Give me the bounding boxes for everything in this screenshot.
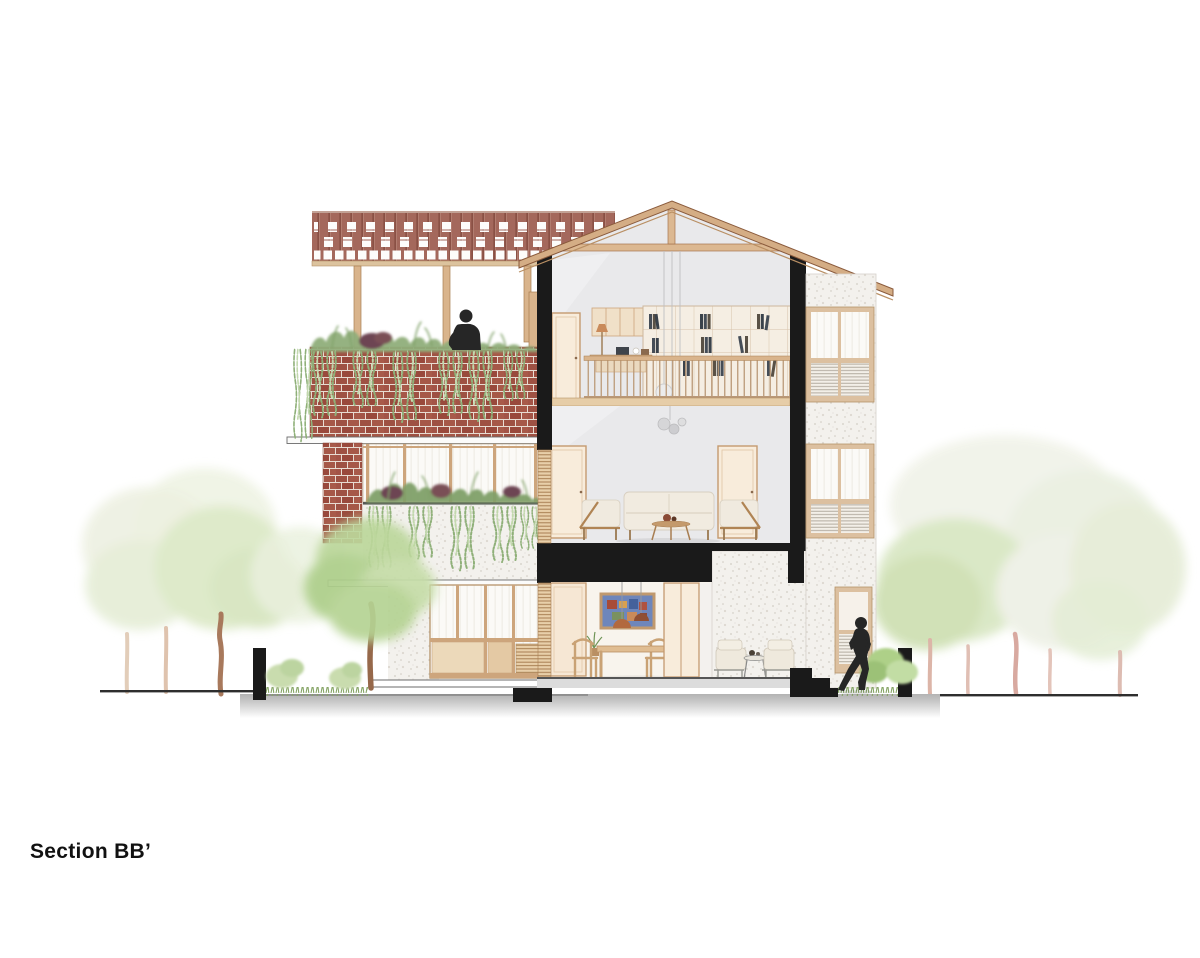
right-trees	[873, 435, 1186, 695]
floor-slab	[537, 679, 806, 688]
cut-wall-right-lower	[788, 551, 804, 583]
mezzanine-floor-edge	[552, 398, 790, 406]
cut-wall-left-upper	[537, 251, 552, 450]
ground-line-left	[100, 690, 253, 692]
louver-column-ground	[538, 583, 551, 677]
building-section-svg	[0, 0, 1200, 958]
tower-window-lower	[806, 444, 874, 538]
sliding-doors	[430, 585, 541, 678]
open-door-leaf	[550, 583, 586, 676]
terrace-door-frame	[529, 292, 538, 348]
sunken-garden	[253, 648, 368, 700]
cut-slab-dining	[537, 543, 712, 582]
retaining-wall	[253, 648, 266, 700]
roof-collar-beam	[562, 244, 780, 251]
floor-line	[537, 677, 806, 679]
terrace-slab-ledge	[287, 437, 541, 444]
terrace-planting	[310, 322, 538, 352]
tower-window-upper	[806, 307, 874, 402]
cut-wall-right-living	[790, 404, 806, 543]
ground-floor	[550, 582, 712, 681]
cut-slab-courtyard	[712, 543, 806, 551]
cut-wall-right-upper	[790, 251, 806, 404]
person-terrace	[449, 310, 481, 351]
drawing-title: Section BB’	[30, 840, 151, 864]
louver-column-living	[538, 450, 551, 543]
roof-king-post	[668, 210, 675, 244]
passage	[700, 583, 712, 678]
cut-jamb	[537, 580, 551, 583]
main-section	[537, 207, 806, 688]
ground-line-right	[908, 694, 1138, 696]
earth-mass	[240, 694, 940, 718]
living-floor	[548, 406, 790, 544]
overhang-vine	[294, 350, 312, 441]
mezzanine-railing	[584, 356, 794, 398]
section-drawing: Section BB’	[0, 0, 1200, 958]
foundation-block	[513, 688, 552, 702]
